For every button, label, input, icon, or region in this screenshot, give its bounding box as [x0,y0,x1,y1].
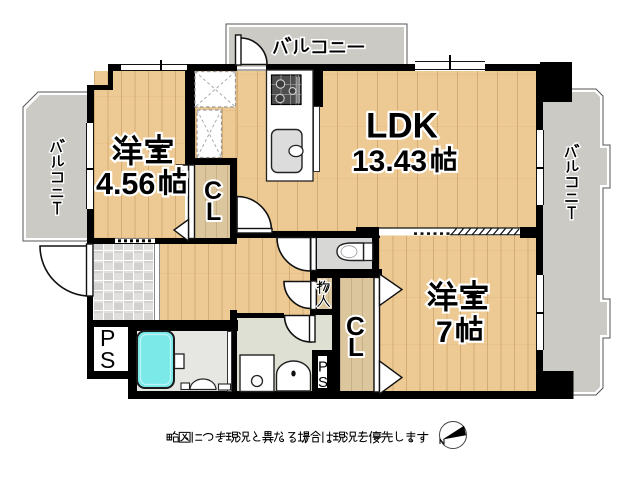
svg-text:P: P [318,359,328,376]
svg-text:S: S [100,347,115,373]
svg-text:4.56: 4.56 [96,167,155,201]
svg-text:L: L [348,332,364,362]
svg-text:LDK: LDK [366,107,438,146]
svg-text:S: S [318,374,328,391]
svg-text:L: L [206,198,221,226]
svg-text:7: 7 [436,316,453,349]
svg-text:13.43: 13.43 [352,145,427,178]
